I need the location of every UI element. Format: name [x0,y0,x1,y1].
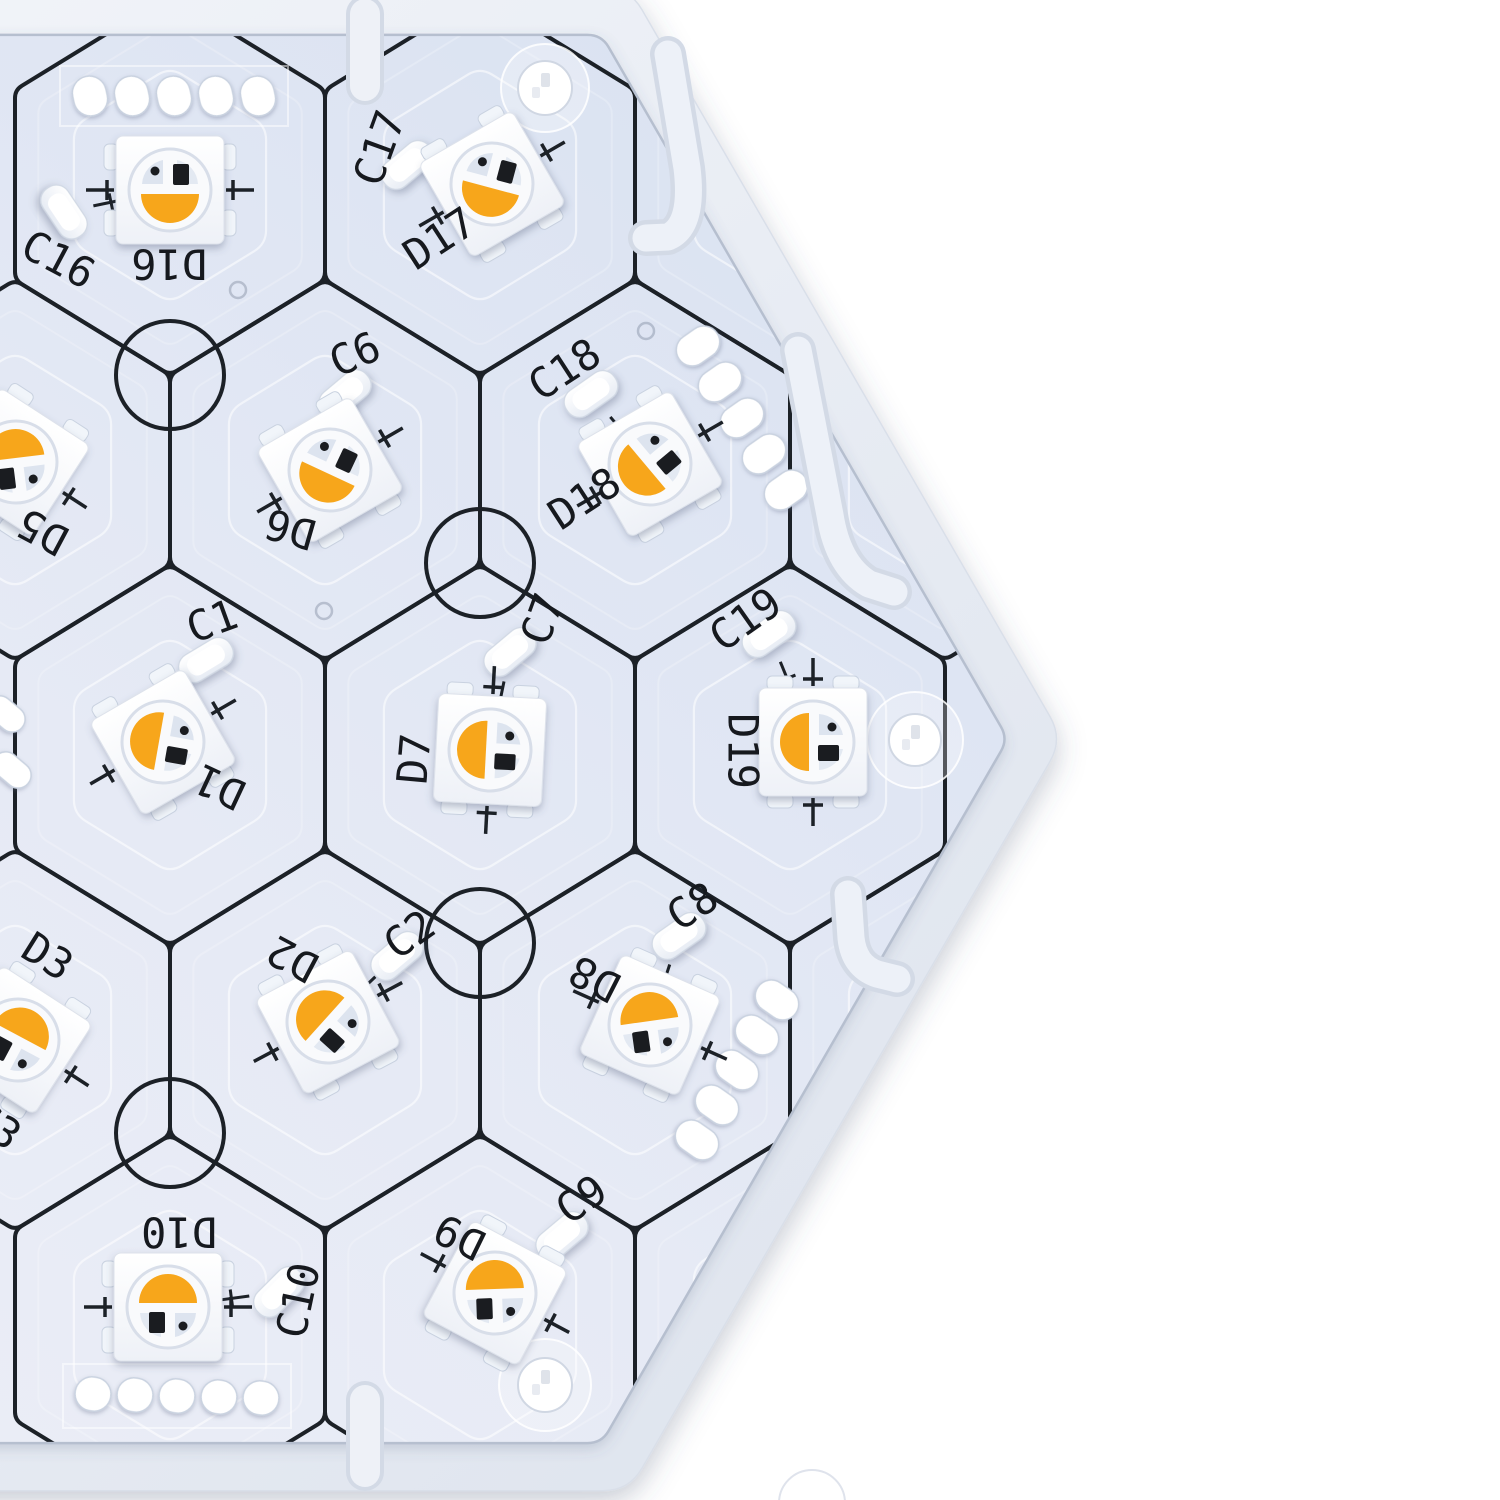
die-chip [0,467,16,490]
screw-hole-glint [541,1370,550,1384]
screw-hole-glint [541,73,550,87]
designator-D10: D10 [141,1208,217,1257]
screw-hole-glint [532,87,540,98]
screw-hole [889,714,941,766]
designator-D7: D7 [387,731,440,786]
die-chip [494,753,516,770]
designator-D19: D19 [719,713,768,789]
die-dot [151,167,160,176]
die-dot [179,1322,188,1331]
screw-hole [518,61,572,115]
die-chip [173,164,189,185]
die-chip [818,745,839,761]
led-D19 [759,658,867,826]
die-dot [828,723,837,732]
led-D16 [86,136,254,244]
led-pcb-product-render: D16D17D5D6D18D1D7D19D2D8D3D10D9C16C17C6C… [0,0,1500,1500]
screw-hole-glint [902,739,910,750]
die-chip [476,1298,493,1320]
screw-hole [518,1358,572,1412]
screw-hole-glint [532,1384,540,1395]
screw-hole-glint [911,725,920,739]
die-chip [149,1312,165,1333]
led-D10 [84,1253,252,1361]
designator-D16: D16 [131,240,207,289]
die-chip [632,1030,651,1053]
